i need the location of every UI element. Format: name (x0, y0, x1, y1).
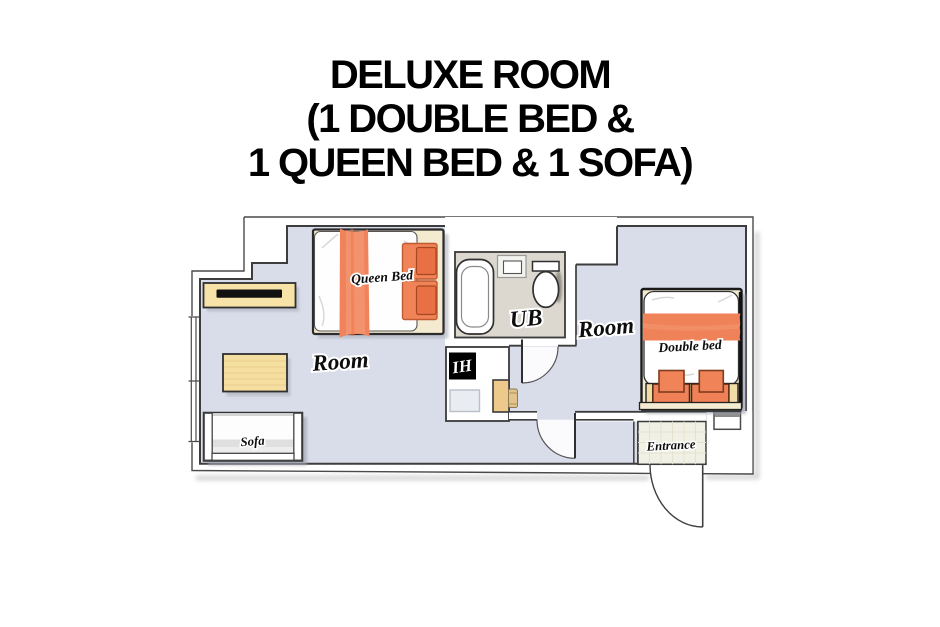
svg-text:IH: IH (450, 356, 474, 378)
svg-text:Sofa: Sofa (240, 434, 266, 450)
svg-text:Room: Room (311, 347, 370, 376)
svg-text:Entrance: Entrance (645, 437, 696, 454)
svg-text:UB: UB (509, 305, 544, 334)
svg-text:Room: Room (576, 313, 635, 343)
